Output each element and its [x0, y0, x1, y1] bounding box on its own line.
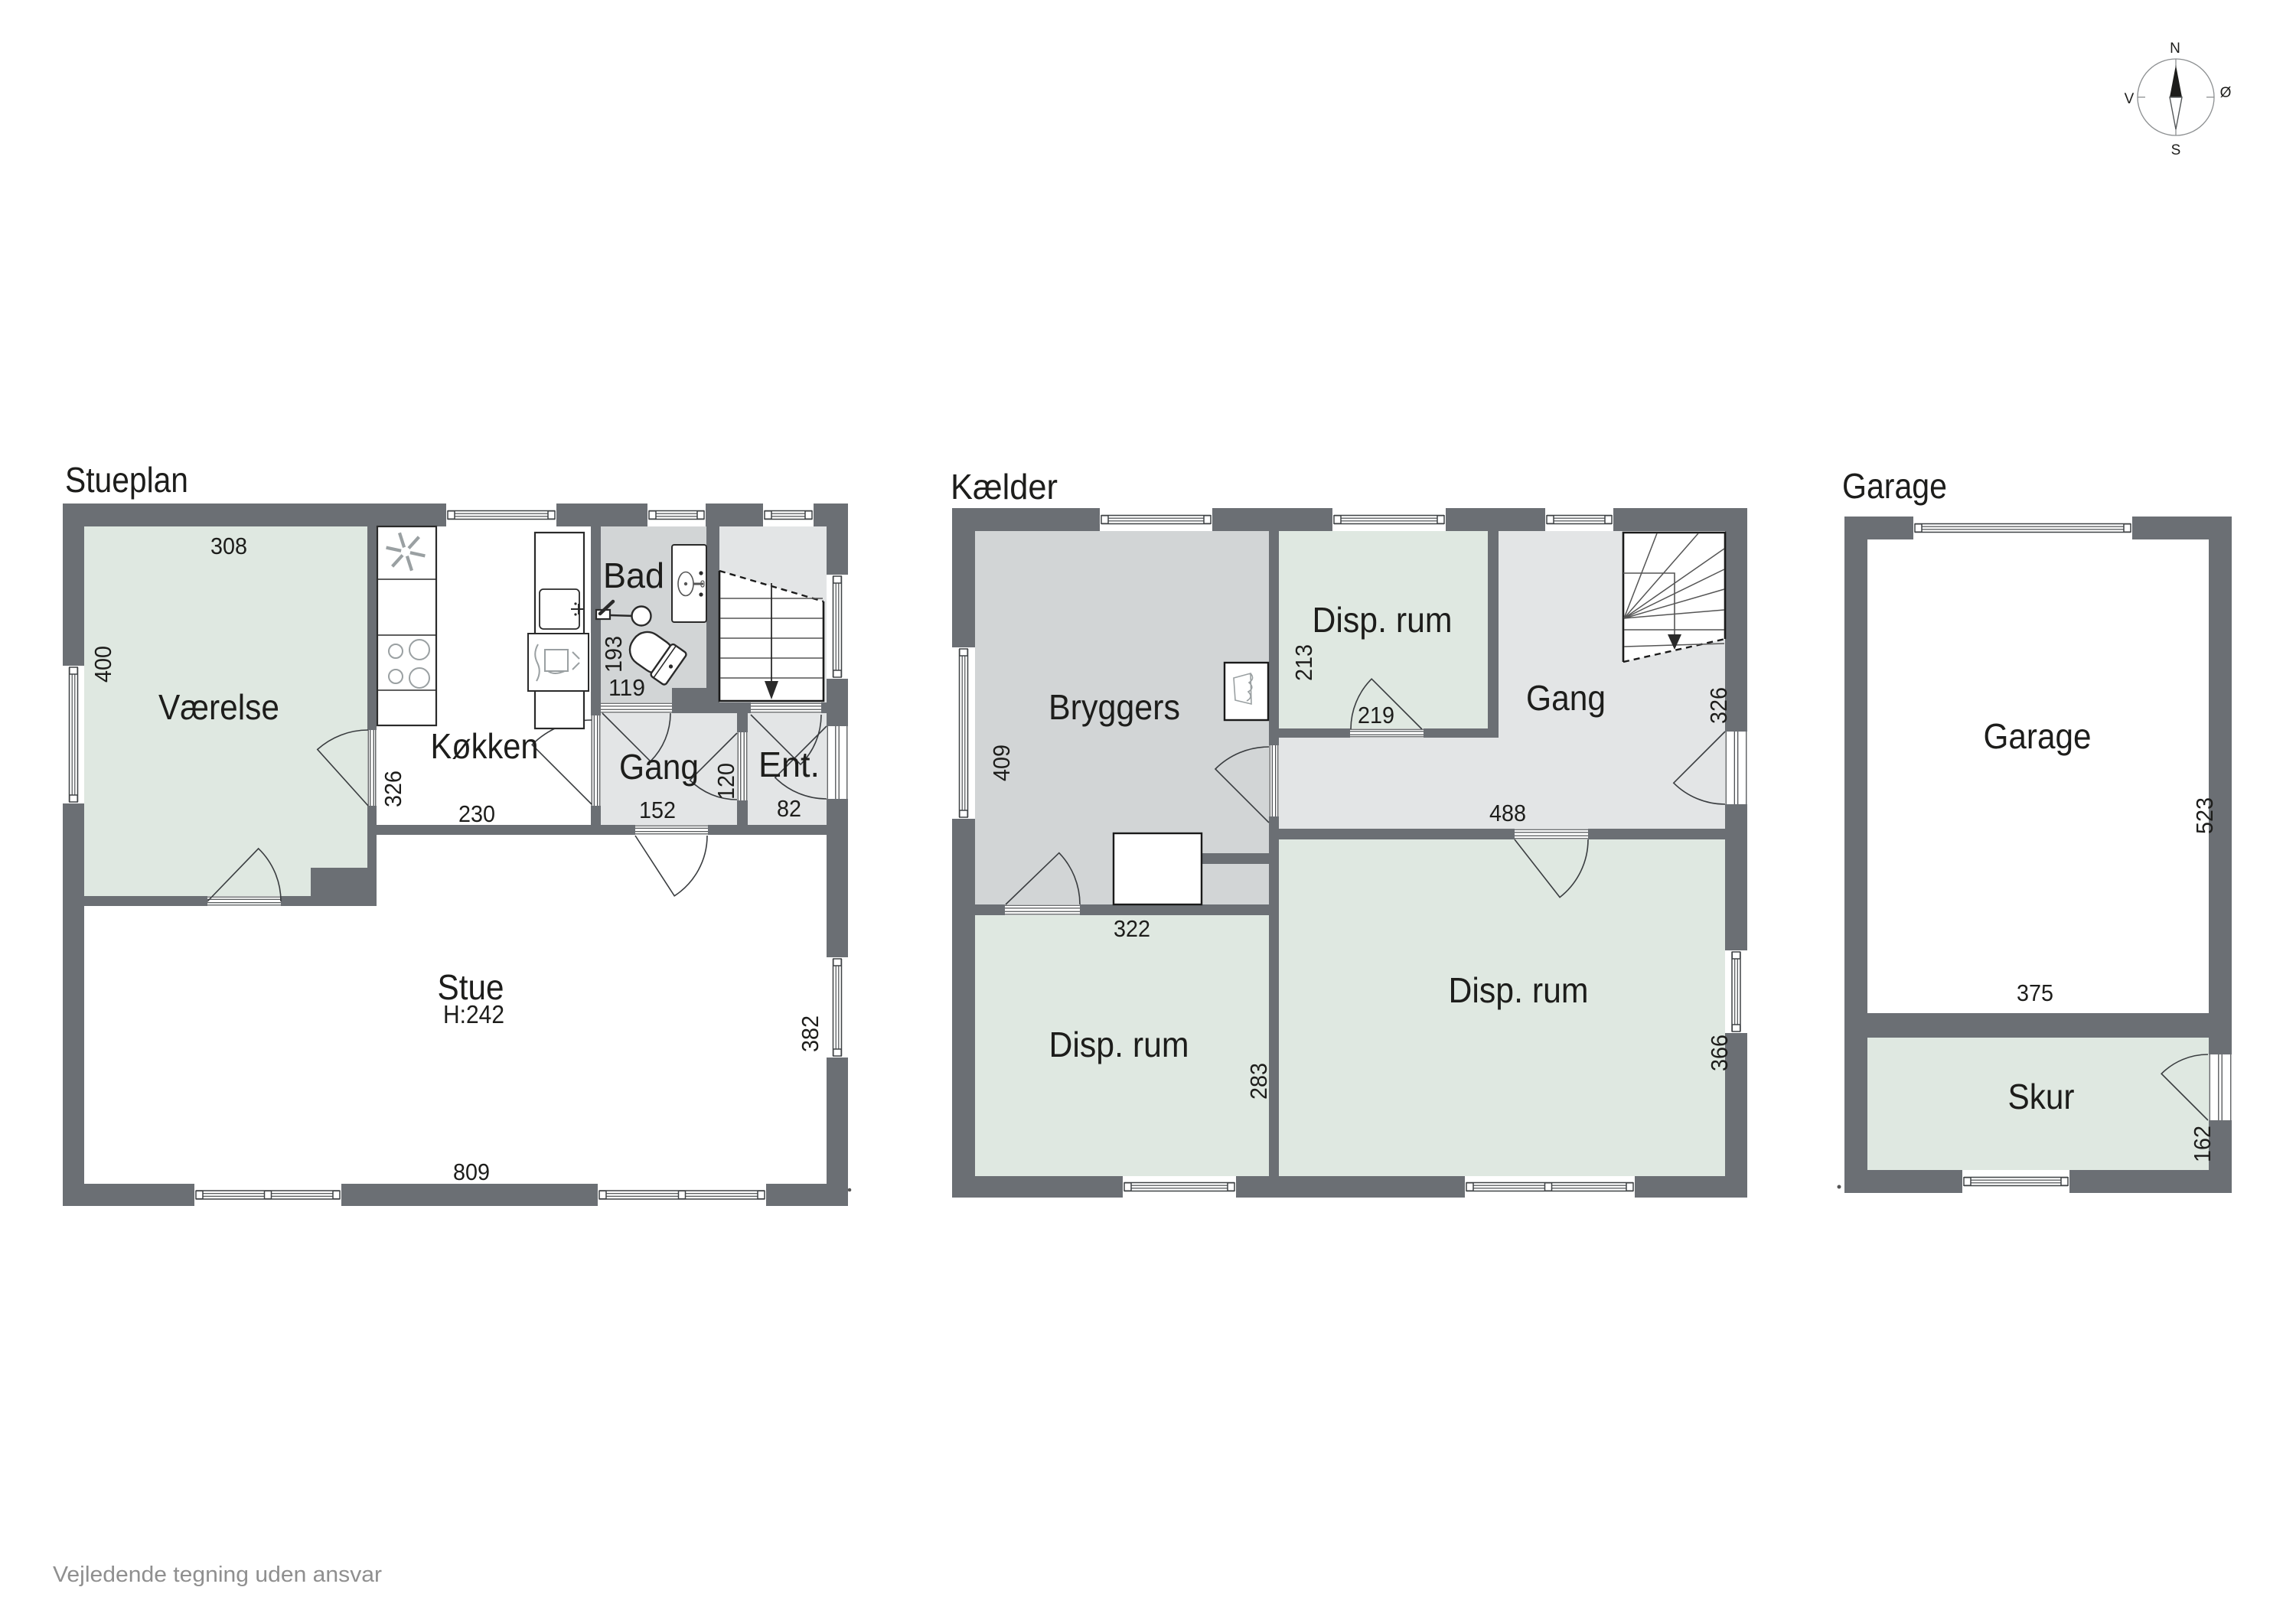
svg-text:Ent.: Ent.: [758, 745, 820, 784]
svg-text:Disp. rum: Disp. rum: [1049, 1025, 1189, 1064]
svg-text:326: 326: [1706, 687, 1732, 724]
svg-text:Køkken: Køkken: [431, 726, 539, 766]
svg-text:162: 162: [2190, 1126, 2216, 1162]
svg-text:Garage: Garage: [1984, 716, 2092, 756]
svg-text:326: 326: [380, 771, 406, 807]
svg-text:308: 308: [210, 533, 247, 559]
svg-text:409: 409: [989, 745, 1015, 781]
svg-text:S: S: [2171, 142, 2181, 158]
svg-text:Disp. rum: Disp. rum: [1449, 970, 1589, 1010]
svg-text:Gang: Gang: [1526, 678, 1606, 718]
svg-text:523: 523: [2192, 797, 2218, 834]
svg-text:213: 213: [1291, 644, 1317, 681]
svg-text:Garage: Garage: [1842, 466, 1947, 506]
svg-text:375: 375: [2017, 980, 2053, 1006]
svg-text:119: 119: [608, 675, 645, 701]
svg-text:400: 400: [90, 646, 116, 683]
svg-text:Værelse: Værelse: [158, 687, 279, 727]
svg-text:V: V: [2125, 91, 2135, 107]
svg-text:Vejledende tegning uden ansvar: Vejledende tegning uden ansvar: [53, 1563, 382, 1587]
svg-text:Skur: Skur: [2008, 1077, 2075, 1116]
svg-text:H:242: H:242: [443, 1000, 504, 1028]
svg-text:382: 382: [797, 1015, 823, 1052]
svg-text:82: 82: [777, 796, 801, 822]
svg-text:152: 152: [639, 797, 676, 823]
svg-text:Bad: Bad: [603, 556, 664, 595]
svg-text:Disp. rum: Disp. rum: [1313, 600, 1453, 640]
svg-text:219: 219: [1358, 702, 1394, 728]
svg-text:Gang: Gang: [619, 747, 699, 787]
svg-text:120: 120: [713, 763, 739, 800]
svg-text:230: 230: [458, 801, 495, 827]
svg-text:Kælder: Kælder: [951, 467, 1058, 507]
svg-text:Ø: Ø: [2220, 85, 2232, 101]
svg-text:Stueplan: Stueplan: [65, 460, 188, 500]
svg-text:322: 322: [1114, 916, 1150, 942]
svg-text:488: 488: [1489, 800, 1526, 826]
svg-text:193: 193: [601, 636, 627, 673]
svg-text:N: N: [2170, 41, 2180, 57]
svg-text:283: 283: [1246, 1063, 1272, 1100]
svg-text:Bryggers: Bryggers: [1049, 687, 1180, 727]
svg-text:366: 366: [1707, 1035, 1733, 1071]
svg-text:809: 809: [453, 1159, 490, 1185]
